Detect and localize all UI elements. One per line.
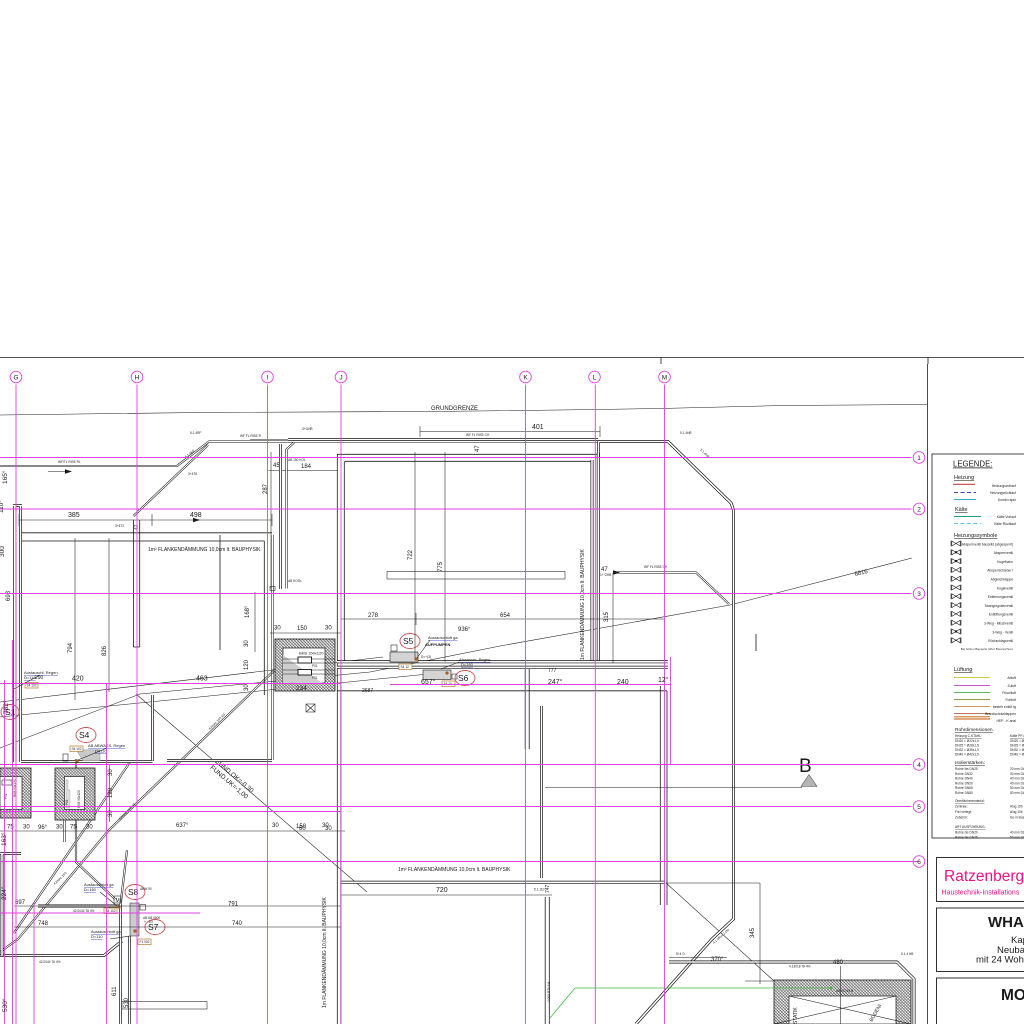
svg-text:1m² FLANKENDÄMMUNG 10,0cm lt.: 1m² FLANKENDÄMMUNG 10,0cm lt. BAUPHYSIK [148, 546, 261, 553]
svg-text:30: 30 [86, 825, 93, 831]
svg-text:LEGENDE:: LEGENDE: [953, 460, 992, 469]
svg-text:777: 777 [548, 668, 557, 674]
svg-text:775: 775 [438, 561, 444, 572]
svg-text:290: 290 [35, 675, 44, 681]
svg-text:1m² FLANKENDÄMMUNG 10,0cm lt.: 1m² FLANKENDÄMMUNG 10,0cm lt. BAUPHYSIK [398, 866, 511, 873]
svg-text:Rohre bis DN25: Rohre bis DN25 [955, 767, 978, 771]
svg-text:DN32 = Ø35x1,5: DN32 = Ø35x1,5 [955, 748, 979, 752]
svg-text:DN32 = Ø: DN32 = Ø [1010, 748, 1024, 752]
svg-text:3+GHB: 3+GHB [302, 427, 313, 431]
svg-text:Heizung C-STAHL:: Heizung C-STAHL: [955, 734, 982, 738]
svg-text:697: 697 [15, 900, 26, 906]
svg-text:791: 791 [228, 902, 239, 908]
svg-text:30: 30 [274, 626, 281, 632]
svg-text:Kombi rapui: Kombi rapui [998, 498, 1016, 502]
svg-text:794: 794 [68, 642, 74, 653]
svg-text:20 mm Dä: 20 mm Dä [1010, 767, 1024, 771]
svg-text:Rohre DN40: Rohre DN40 [955, 777, 973, 781]
svg-text:30: 30 [244, 684, 250, 691]
svg-text:Rohre bis DN20: Rohre bis DN20 [955, 831, 978, 835]
svg-text:30: 30 [325, 826, 332, 832]
svg-text:40 mm Dä: 40 mm Dä [1010, 831, 1024, 835]
svg-text:5.1.110: 5.1.110 [534, 888, 545, 892]
svg-text:AB KOOL: AB KOOL [288, 579, 302, 583]
svg-text:MON: MON [1001, 987, 1024, 1004]
svg-text:Bei fehlen Bauseits lüfter Bau: Bei fehlen Bauseits lüfter Bauzeichner [961, 647, 1013, 651]
svg-text:WHAG: WHAG [988, 914, 1024, 931]
svg-text:Heizung: Heizung [954, 475, 974, 481]
svg-text:60: 60 [299, 826, 306, 832]
svg-text:Oberflächenmaterial:: Oberflächenmaterial: [955, 799, 985, 803]
svg-text:L: L [593, 375, 597, 382]
svg-text:S5: S5 [403, 636, 414, 646]
svg-text:240: 240 [617, 679, 629, 686]
svg-text:498: 498 [190, 512, 202, 519]
svg-text:WF/TL RISE RL: WF/TL RISE RL [58, 460, 81, 464]
svg-text:P01: P01 [312, 664, 318, 668]
svg-text:M: M [662, 375, 667, 382]
svg-text:Alug 10b: Alug 10b [1010, 805, 1023, 809]
svg-text:Absperrventil: Absperrventil [994, 551, 1014, 555]
svg-text:Heizungssymbole: Heizungssymbole [954, 533, 997, 539]
svg-text:30: 30 [325, 626, 332, 632]
svg-text:120: 120 [108, 787, 114, 798]
svg-text:247°: 247° [548, 678, 563, 686]
svg-text:30: 30 [56, 825, 63, 831]
svg-text:G: G [13, 375, 18, 382]
svg-text:782°: 782° [2, 700, 10, 714]
svg-text:ART AUSFÜHRUNG:: ART AUSFÜHRUNG: [955, 825, 985, 829]
svg-text:936°: 936° [458, 627, 471, 633]
svg-text:D=110: D=110 [91, 934, 103, 939]
svg-text:42.0044 TA 4%: 42.0044 TA 4% [39, 960, 61, 964]
svg-text:Abluft: Abluft [1007, 676, 1016, 680]
svg-text:50 mm Dä: 50 mm Dä [1010, 836, 1024, 840]
svg-text:740: 740 [232, 921, 243, 927]
svg-text:AB 150 KOL: AB 150 KOL [288, 458, 306, 462]
svg-text:Rohre DN65: Rohre DN65 [955, 786, 973, 790]
svg-text:163°: 163° [0, 832, 8, 846]
svg-text:DN25 = Ø28x1,5: DN25 = Ø28x1,5 [955, 744, 979, 748]
svg-text:420: 420 [72, 676, 84, 683]
svg-text:GRUNDGRENZE: GRUNDGRENZE [431, 406, 478, 412]
svg-text:Iso m klass: Iso m klass [1010, 816, 1024, 820]
svg-text:J: J [339, 375, 342, 382]
svg-text:Kälte: Kälte [955, 507, 968, 513]
svg-text:4.13018 TA 4%: 4.13018 TA 4% [789, 965, 811, 969]
svg-text:D=+(3): D=+(3) [421, 655, 431, 659]
svg-text:besteh entlüf tg: besteh entlüf tg [993, 705, 1016, 709]
svg-text:75: 75 [7, 825, 14, 831]
svg-text:40 mm Dä: 40 mm Dä [1010, 777, 1024, 781]
svg-text:150: 150 [297, 626, 308, 632]
svg-text:30: 30 [108, 810, 114, 817]
svg-text:M: M [116, 898, 120, 904]
svg-text:3-Weg - Ventil: 3-Weg - Ventil [992, 630, 1013, 634]
svg-text:D=110: D=110 [95, 749, 107, 754]
svg-text:Brandschutzklappen: Brandschutzklappen [985, 712, 1016, 716]
svg-text:Rohre DN80: Rohre DN80 [955, 791, 973, 795]
svg-text:Kälte Rücklauf: Kälte Rücklauf [994, 522, 1016, 526]
svg-text:P01: P01 [65, 799, 69, 805]
svg-text:463: 463 [196, 676, 208, 683]
svg-text:Strangregulierventil: Strangregulierventil [985, 604, 1014, 608]
svg-text:1: 1 [917, 455, 921, 462]
svg-text:Frei verlegt:: Frei verlegt: [955, 810, 972, 814]
svg-text:Kugelventil: Kugelventil [997, 586, 1013, 590]
svg-text:30: 30 [244, 640, 250, 647]
svg-text:698: 698 [6, 590, 12, 601]
svg-text:2: 2 [917, 507, 921, 514]
svg-text:P01: P01 [312, 676, 318, 680]
svg-text:Kälte PP-R: Kälte PP-R [1010, 734, 1024, 738]
svg-text:DN20 = Ø22x1,5: DN20 = Ø22x1,5 [955, 739, 979, 743]
svg-text:S6: S6 [458, 673, 469, 683]
svg-text:Lüftung: Lüftung [954, 667, 972, 673]
svg-text:Austauschluft ga: Austauschluft ga [428, 635, 458, 640]
svg-text:75: 75 [70, 825, 77, 831]
svg-text:Zuluft: Zuluft [1008, 684, 1017, 688]
svg-text:AUFPUMPEN: AUFPUMPEN [425, 642, 450, 647]
svg-text:748: 748 [38, 921, 49, 927]
svg-text:720: 720 [436, 887, 448, 894]
svg-text:722: 722 [408, 549, 414, 560]
svg-text:K: K [523, 375, 528, 382]
svg-text:BKB 90x120: BKB 90x120 [77, 790, 81, 808]
svg-text:45: 45 [273, 463, 280, 469]
svg-text:Entlüftungsventil: Entlüftungsventil [989, 613, 1013, 617]
svg-text:S4 102: S4 102 [72, 747, 82, 751]
svg-text:Kugelhahn: Kugelhahn [997, 560, 1013, 564]
svg-text:Rohrdimensionen: Rohrdimensionen [955, 727, 993, 733]
svg-text:637°: 637° [176, 823, 189, 829]
svg-text:Heizungsvorlauf: Heizungsvorlauf [992, 484, 1016, 488]
svg-text:2687: 2687 [362, 688, 373, 694]
svg-text:DN25 = Ø: DN25 = Ø [1010, 744, 1024, 748]
svg-text:300: 300 [0, 546, 6, 557]
svg-text:530: 530 [124, 997, 130, 1008]
svg-text:110°: 110° [0, 500, 5, 513]
svg-text:50 mm Dä: 50 mm Dä [1010, 791, 1024, 795]
svg-text:Zentrale:: Zentrale: [955, 805, 968, 809]
svg-text:5.1.4 HB: 5.1.4 HB [901, 952, 913, 956]
svg-text:3+478: 3+478 [188, 472, 197, 476]
svg-text:4: 4 [917, 762, 921, 769]
svg-text:168°: 168° [245, 605, 251, 618]
svg-text:I: I [267, 375, 269, 382]
svg-text:30: 30 [108, 769, 114, 776]
svg-text:287: 287 [263, 483, 269, 494]
svg-text:S4: S4 [79, 730, 90, 740]
svg-text:B: B [799, 756, 812, 777]
svg-text:Frischluft: Frischluft [1002, 691, 1016, 695]
svg-text:DN40 = Ø42x1,5: DN40 = Ø42x1,5 [955, 753, 979, 757]
svg-text:Entleerungsventil: Entleerungsventil [988, 595, 1014, 599]
svg-text:401: 401 [532, 424, 544, 431]
svg-text:6: 6 [917, 859, 921, 866]
svg-text:WF FL RISE R: WF FL RISE R [240, 434, 262, 438]
svg-text:826: 826 [102, 645, 108, 656]
svg-text:530°: 530° [1, 998, 9, 1012]
svg-text:Rohre DN32: Rohre DN32 [955, 772, 973, 776]
svg-text:30: 30 [23, 825, 30, 831]
svg-text:D=160: D=160 [84, 887, 97, 892]
svg-text:Rückschlagventil: Rückschlagventil [988, 639, 1013, 643]
svg-text:5+4 O: 5+4 O [676, 952, 685, 956]
svg-text:30: 30 [272, 823, 279, 829]
svg-text:Rohre bis DN25: Rohre bis DN25 [955, 836, 978, 840]
svg-text:5.1.4RF: 5.1.4RF [190, 431, 201, 435]
svg-text:40 mm Dä: 40 mm Dä [1010, 781, 1024, 785]
svg-text:370°: 370° [711, 957, 724, 963]
svg-text:+ - 4G: + - 4G [144, 920, 153, 924]
svg-text:HEP - K anal: HEP - K anal [996, 719, 1016, 723]
svg-text:Haustechnik-Installations: Haustechnik-Installations [942, 890, 1020, 897]
svg-text:Isolierstärken:: Isolierstärken: [955, 760, 985, 766]
svg-text:345: 345 [750, 927, 756, 938]
svg-text:5: 5 [917, 804, 921, 811]
svg-text:120: 120 [244, 659, 250, 670]
svg-text:657°: 657° [421, 678, 436, 686]
svg-text:Alug 10b: Alug 10b [1010, 810, 1023, 814]
svg-text:3: 3 [917, 591, 921, 598]
svg-text:Kälte Vorlauf: Kälte Vorlauf [997, 515, 1016, 519]
svg-text:DN20 = Ø: DN20 = Ø [1010, 739, 1024, 743]
svg-text:12°: 12° [658, 676, 669, 684]
svg-text:F1 002: F1 002 [140, 940, 150, 944]
svg-text:30 mm Dä: 30 mm Dä [1010, 772, 1024, 776]
svg-text:Fortluft: Fortluft [1005, 698, 1016, 702]
svg-text:747: 747 [545, 884, 551, 893]
svg-text:4.000 RTA 4%: 4.000 RTA 4% [547, 982, 551, 1002]
svg-text:1m FLANKENDÄMMUNG 10,0cm lt. B: 1m FLANKENDÄMMUNG 10,0cm lt. BAUPHYSIK [579, 548, 586, 660]
svg-text:1m FLANKENDÄMMUNG 10,0cm lt. B: 1m FLANKENDÄMMUNG 10,0cm lt. BAUPHYSIK [321, 896, 328, 1008]
svg-text:D=160: D=160 [461, 662, 474, 667]
svg-text:165°: 165° [1, 470, 9, 484]
svg-text:184: 184 [301, 464, 312, 470]
svg-text:WF FL RISE CH: WF FL RISE CH [466, 433, 490, 437]
svg-text:Abgleichklappe: Abgleichklappe [991, 578, 1014, 582]
svg-text:42.0044 TA 4%: 42.0044 TA 4% [73, 909, 95, 913]
svg-text:S4 12: S4 12 [401, 665, 410, 669]
svg-text:ABW 90: ABW 90 [140, 887, 152, 891]
svg-text:Rohre DN50: Rohre DN50 [955, 781, 973, 785]
svg-text:S4 102: S4 102 [27, 684, 37, 688]
svg-text:Absperrventil bauseits (abgesp: Absperrventil bauseits (abgesperrt) [962, 542, 1013, 546]
svg-text:mit 24 Wohnu: mit 24 Wohnu [976, 955, 1024, 966]
svg-text:278: 278 [368, 613, 379, 619]
svg-text:AB KG 43 B: AB KG 43 B [836, 989, 853, 993]
svg-text:5.1.4HB: 5.1.4HB [680, 431, 692, 435]
svg-text:50 mm Dä: 50 mm Dä [1010, 786, 1024, 790]
svg-text:BKB 150x120: BKB 150x120 [299, 651, 324, 656]
svg-text:385: 385 [68, 512, 80, 519]
svg-text:224°: 224° [0, 886, 8, 900]
svg-text:47: 47 [475, 445, 481, 452]
svg-text:Ratzenberge: Ratzenberge [944, 868, 1024, 885]
svg-text:3-Weg - Mischventil: 3-Weg - Mischventil [984, 622, 1013, 626]
svg-text:611: 611 [112, 986, 118, 996]
svg-text:3+473: 3+473 [115, 524, 124, 528]
svg-text:315: 315 [604, 611, 610, 622]
svg-text:654: 654 [500, 613, 511, 619]
svg-text:Zubehör:: Zubehör: [955, 816, 968, 820]
svg-text:Absperrschieber i: Absperrschieber i [987, 569, 1013, 573]
svg-text:H: H [135, 375, 140, 382]
svg-text:480: 480 [833, 960, 844, 966]
svg-text:STATIK: STATIK [793, 1007, 799, 1024]
svg-text:Heizungsrücklauf: Heizungsrücklauf [990, 491, 1016, 495]
svg-text:DN40 = Ø: DN40 = Ø [1010, 753, 1024, 757]
svg-text:96°: 96° [38, 825, 48, 831]
svg-text:234: 234 [296, 685, 307, 692]
svg-text:1+ GHB: 1+ GHB [600, 573, 611, 577]
